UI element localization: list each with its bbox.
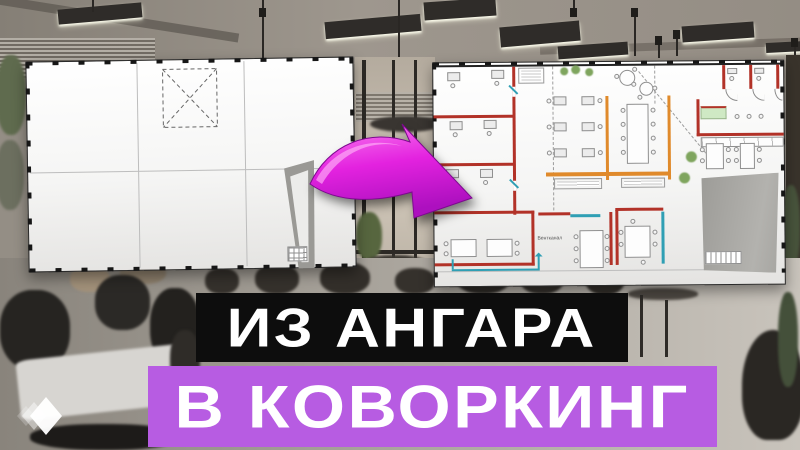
headline-line1-banner: ИЗ АНГАРА (196, 293, 628, 362)
stairs-grid (287, 246, 307, 261)
vent-shaft-label: Вентканал (537, 235, 562, 241)
headline-line1: ИЗ АНГАРА (227, 296, 597, 360)
thumbnail-canvas: Вентканал (0, 0, 800, 450)
stairs (705, 251, 742, 264)
headline-line2: В КОВОРКИНГ (175, 371, 690, 441)
headline-line2-banner: В КОВОРКИНГ (148, 366, 717, 447)
dashed-x-zone (161, 68, 218, 129)
transform-arrow-icon (298, 122, 488, 222)
triple-diamond-logo-icon (12, 394, 64, 442)
kitchen-counter (700, 106, 726, 119)
